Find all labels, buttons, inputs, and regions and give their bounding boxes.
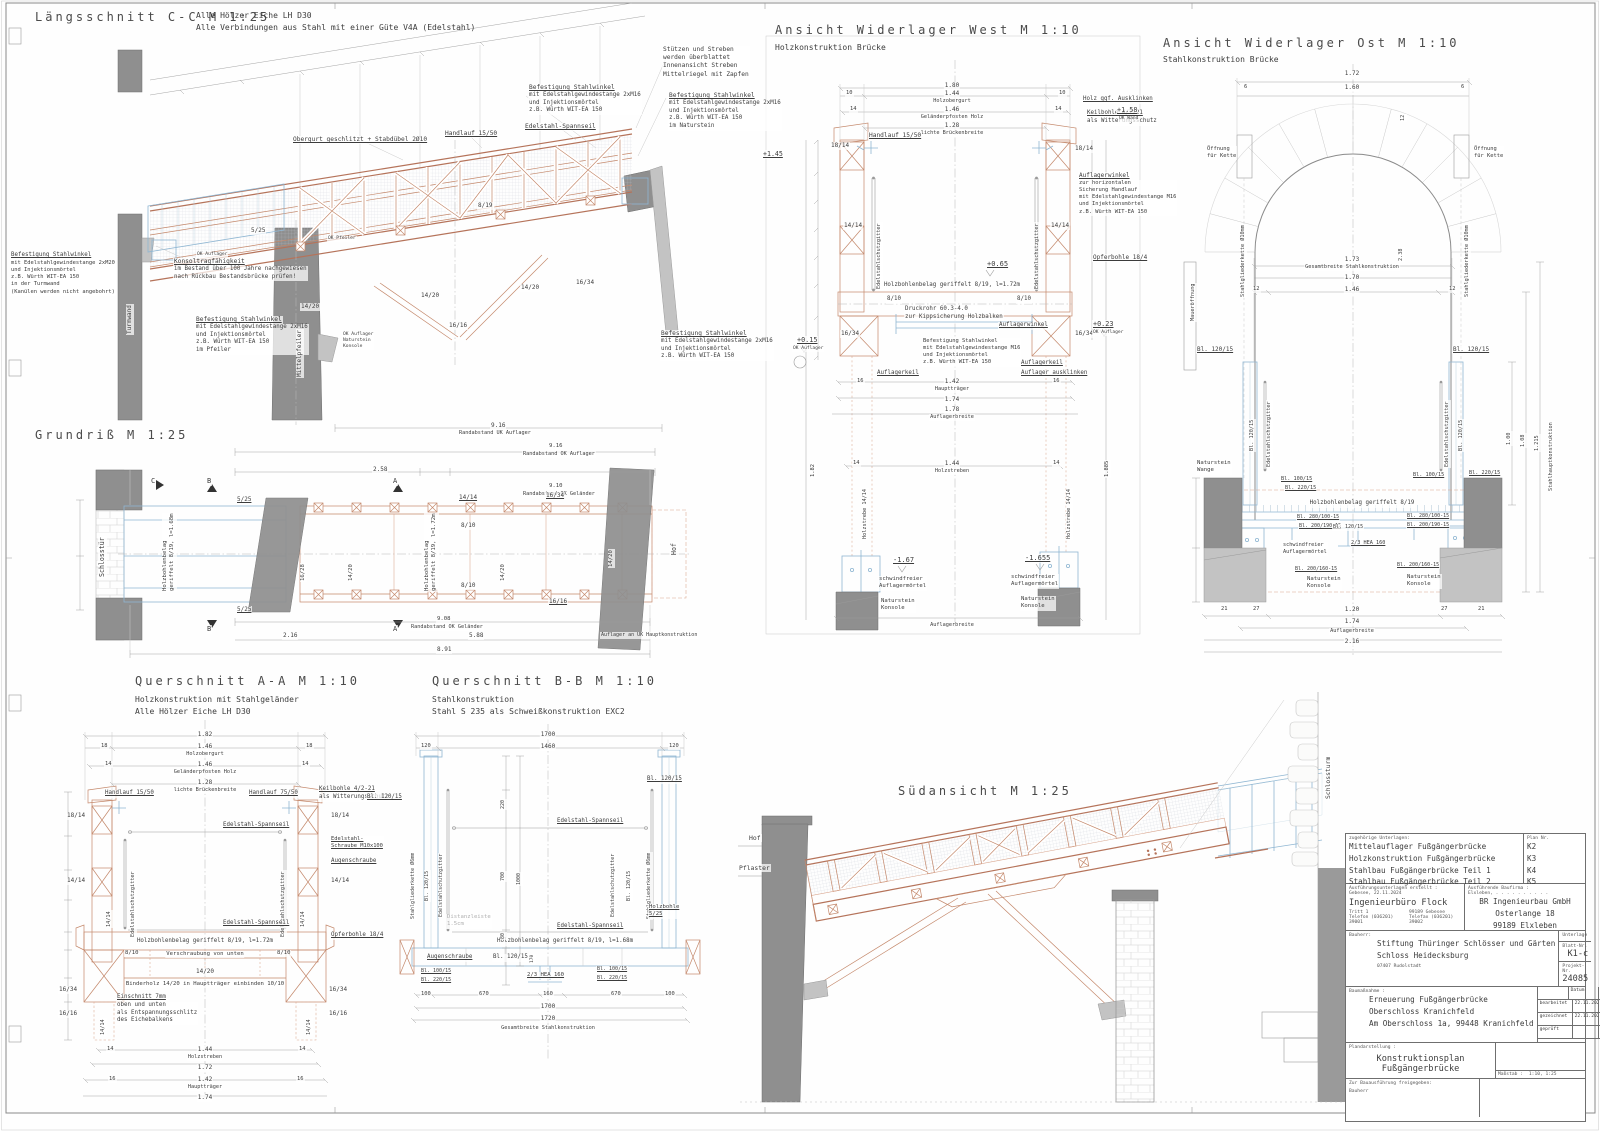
plan-title: Konstruktionsplan Fußgängerbrücke <box>1349 1054 1492 1074</box>
cad-label: Holzbohlenbelag geriffelt 8/19, l=1.68m <box>162 513 177 592</box>
cad-label: 14/14 <box>66 877 86 885</box>
cad-label: Bl. 220/15 <box>1468 470 1501 477</box>
cad-label: 1.885 <box>1104 460 1111 478</box>
cad-label: 1.44 <box>197 1046 213 1054</box>
view-querschnitt-aa <box>64 720 334 1100</box>
cad-label: Holzstreben <box>934 468 970 475</box>
cad-label: 9.08 <box>436 616 451 623</box>
contractor-cell: Ausführende Baufirma : Elxleben, . . . .… <box>1464 884 1585 930</box>
cad-label: 16/34 <box>328 986 348 994</box>
title-grundriss: Grundriß M 1:25 <box>35 428 188 442</box>
cad-label: 1.28 <box>197 779 213 787</box>
cad-label: 14/20 <box>520 284 540 292</box>
cad-label: 14/14 <box>330 877 350 885</box>
cad-label: Bl. 120/15 <box>1332 524 1364 531</box>
cad-label: Naturstein Konsole <box>1020 596 1056 611</box>
cad-label: Maueröffnung <box>1190 283 1197 322</box>
cad-label: 1.08 <box>1520 434 1527 449</box>
cad-label: Stahlhauptkonstruktion <box>1548 421 1555 492</box>
cad-label: 21 <box>1477 606 1486 613</box>
cad-label: Stahlgliederkette Ø10mm <box>1464 224 1471 298</box>
release-empty-cell <box>1479 1079 1585 1117</box>
cad-label: mit Edelstahlgewindestange 2xM16 und Inj… <box>528 92 642 115</box>
cad-label: 2.58 <box>372 466 388 474</box>
attachment-no: K2 <box>1527 841 1582 853</box>
cad-label: 120 <box>420 743 432 750</box>
cad-label: schwindfreier Auflagermörtel <box>1010 574 1059 589</box>
cad-label: Befestigung Stahlwinkel <box>195 316 283 324</box>
cad-label: Auflagerwinkel <box>998 322 1049 330</box>
cad-label: Holzobergurt <box>932 98 971 105</box>
cad-label: 14/20 <box>420 292 440 300</box>
cad-label: 1000 <box>516 872 523 886</box>
cad-label: 10 <box>1058 90 1067 97</box>
cad-label: Bl. 120/15 <box>492 954 529 962</box>
cad-label: Öffnung für Kette <box>1473 146 1504 160</box>
cad-label: Druckrohr 60.3-4.0 zur Kippsicherung Hol… <box>904 306 1004 321</box>
cad-label: Binderholz 14/20 in Hauptträger einbinde… <box>125 981 285 988</box>
cad-label: 14/14 <box>1050 222 1070 230</box>
cad-label: mit Edelstahlgewindestange 2xM16 und Inj… <box>195 324 309 355</box>
cad-label: 100 <box>420 991 432 998</box>
sheet-no: K1-c <box>1562 949 1588 959</box>
cad-label: Edelstahlschutzgitter <box>438 853 445 918</box>
cad-label: 1.60 <box>1344 84 1360 92</box>
cad-label: 14/14 <box>100 1018 107 1036</box>
sig-cell: geprüft <box>1538 1026 1572 1038</box>
measure-line3: Am Oberschloss 1a, 99448 Kranichfeld <box>1369 1018 1534 1030</box>
cad-label: 1.28 <box>944 122 960 130</box>
title-querschnitt-bb: Querschnitt B-B M 1:10 <box>432 674 657 688</box>
cad-label: OK Wand <box>1118 116 1139 122</box>
cad-label: 14/20 <box>195 968 215 976</box>
cad-label: 160 <box>542 991 554 998</box>
cad-label: Holz ggf. Ausklinken <box>1082 96 1154 104</box>
cad-label: +0.65 <box>986 260 1009 269</box>
cad-label: Befestigung Stahlwinkel <box>668 92 756 100</box>
engineer-name: Ingenieurbüro Flock <box>1349 898 1461 908</box>
client-line2: Schloss Heidecksburg <box>1377 950 1555 962</box>
cad-label: 8/19 <box>477 202 493 210</box>
measure-line2: Oberschloss Kranichfeld <box>1369 1006 1534 1018</box>
cad-label: 16/34 <box>58 986 78 994</box>
client-cell: Bauherr: Stiftung Thüringer Schlösser un… <box>1346 931 1558 986</box>
signature-table: Datum Zeichen bearbeitet22.11.2024Flockg… <box>1537 987 1600 1042</box>
cad-label: 670 <box>478 991 490 998</box>
cad-label: 12 <box>1448 286 1457 293</box>
cad-label: Edelstahl-Spannseil <box>556 923 624 931</box>
cad-label: 14/14 <box>458 494 478 502</box>
cad-label: OK Auflager <box>792 346 824 352</box>
cad-label: Hof <box>670 542 679 556</box>
cad-label: 16 <box>296 1076 305 1083</box>
cad-label: Bl. 120/15 <box>1458 419 1465 452</box>
cad-label: 14 <box>852 460 861 467</box>
cad-label: Auflagerkeil <box>876 370 920 378</box>
sig-cell: gezeichnet <box>1538 1013 1572 1025</box>
cad-label: Stahlgliederkette Ø6mm <box>410 852 417 920</box>
cad-label: Holzbohlenbelag geriffelt 8/19, l=1.68m <box>496 938 634 946</box>
cad-label: Holzbohlenbelag geriffelt 8/19, l=1.72m <box>136 938 274 946</box>
cad-label: Edelstahlschutzgitter <box>610 853 617 918</box>
cad-label: 14 <box>1054 106 1063 113</box>
cad-label: schwindfreier Auflagermörtel <box>878 576 927 591</box>
cad-label: B <box>206 477 212 486</box>
attachment-name: Mittelauflager Fußgängerbrücke <box>1349 841 1520 853</box>
cad-label: OK Auflager <box>1092 330 1124 336</box>
cad-label: Auflager ausklinken <box>1020 370 1088 378</box>
project-no: 24085 <box>1562 974 1588 984</box>
cad-label: 14/20 <box>300 303 320 311</box>
cad-label: A <box>392 625 398 634</box>
cad-label: Edelstahlschutzgitter <box>1034 222 1041 290</box>
cad-label: 18/14 <box>330 812 350 820</box>
cad-label: Bl. 280/100-15 <box>1296 514 1340 521</box>
title-querschnitt-aa: Querschnitt A-A M 1:10 <box>135 674 360 688</box>
cad-label: Bl. 220/15 <box>596 975 628 982</box>
cad-label: Edelstahl- Schraube M10x100 <box>330 836 384 850</box>
cad-label: 8/10 <box>1016 296 1032 304</box>
cad-label: im Bestand über 100 Jahre nachgewiesen n… <box>173 266 308 281</box>
cad-label: Bl. 220/15 <box>420 977 452 984</box>
cad-label: 16/34 <box>840 330 860 338</box>
cad-label: 14 <box>301 761 310 768</box>
cad-label: 18/14 <box>1074 145 1094 153</box>
cad-label: Randabstand UK Auflager <box>458 430 532 437</box>
scale-label: Maßstab : <box>1498 1072 1523 1077</box>
cad-label: OK Auflager Naturstein Konsole <box>342 332 374 350</box>
cad-label: Verschraubung von unten <box>165 951 244 958</box>
cad-label: 10 <box>845 90 854 97</box>
cad-label: C <box>150 477 156 486</box>
cad-label: Bl. 120/15 <box>646 776 683 784</box>
cad-label: 1.46 <box>197 743 213 751</box>
cad-label: 14 <box>104 761 113 768</box>
cad-label: 16/16 <box>548 598 568 606</box>
cad-label: 14/20 <box>608 549 615 568</box>
cad-label: 16/28 <box>300 563 307 582</box>
cad-label: 14 <box>1052 460 1061 467</box>
cad-label: Holzobergurt <box>185 751 224 758</box>
cad-label: 18/14 <box>66 812 86 820</box>
cad-label: Mittelpfeiler <box>296 329 304 378</box>
cad-label: 6 <box>1460 84 1465 91</box>
cad-label: Augenschraube <box>330 858 377 866</box>
attachment-no: K4 <box>1527 865 1582 877</box>
scale-cell: Maßstab : 1:10, 1:25 <box>1495 1043 1585 1078</box>
cad-label: 14/14 <box>106 910 113 928</box>
cad-label: Handlauf 15/50 <box>104 790 155 798</box>
cad-label: 12 <box>1400 114 1407 122</box>
cad-label: Bl. 200/160-15 <box>1396 562 1440 569</box>
cad-label: Auflagerwinkel <box>1078 172 1131 180</box>
cad-label: Hauptträger <box>187 1084 223 1091</box>
cad-label: 1.46 <box>197 761 213 769</box>
note-stuetzen: Stützen und Streben werden überblattet I… <box>662 46 750 79</box>
cad-label: 120 <box>668 743 680 750</box>
title-widerlager-west: Ansicht Widerlager West M 1:10 <box>775 23 1082 37</box>
cad-label: Gesamtbreite Stahlkonstruktion <box>500 1025 596 1032</box>
scale-value: 1:10, 1:25 <box>1529 1072 1557 1077</box>
cad-label: 14/20 <box>500 563 507 582</box>
cad-label: 18 <box>305 743 314 750</box>
engineer-fax: Telefax (036201) 39002 <box>1409 915 1461 925</box>
cad-label: 16 <box>1052 378 1061 385</box>
title-widerlager-ost: Ansicht Widerlager Ost M 1:10 <box>1163 36 1460 50</box>
cad-label: Bl. 120/15 <box>1452 346 1490 354</box>
cad-label: 700 <box>500 871 507 882</box>
plan-no-cell: Plan Nr. K2 K3 K4 K5 <box>1523 834 1585 883</box>
cad-label: Naturstein Wange <box>1196 460 1232 475</box>
cad-label: 9.10 <box>548 483 563 490</box>
project-label: Projekt-Nr. <box>1562 964 1588 974</box>
release-label: Zur Bauausführung freigegeben: <box>1349 1081 1476 1086</box>
sig-rows: bearbeitet22.11.2024Flockgezeichnet22.11… <box>1538 1000 1600 1039</box>
cad-label: 670 <box>610 991 622 998</box>
cad-label: Augenschraube <box>426 954 473 962</box>
cad-label: 14/14 <box>306 1018 313 1036</box>
cad-label: Keilbohle 4/2-21 <box>318 786 376 794</box>
cad-label: 1.00 <box>1506 432 1513 447</box>
cad-label: 1.82 <box>197 731 213 739</box>
cad-label: Handlauf 15/50 <box>444 130 498 138</box>
cad-label: Auflagerbreite <box>929 622 975 629</box>
cad-label: 16/16 <box>448 322 468 330</box>
cad-label: 16/16 <box>328 1010 348 1018</box>
cad-label: Edelstahlschutzgitter <box>876 222 883 290</box>
cad-label: A <box>392 477 398 486</box>
cad-label: Bl. 100/15 <box>1412 472 1445 479</box>
sig-cell: bearbeitet <box>1538 1000 1572 1012</box>
cad-label: Geländerpfosten Holz <box>920 114 984 121</box>
cad-label: Auflagerkeil <box>1020 360 1064 368</box>
cad-label: Randabstand OK Geländer <box>410 624 484 631</box>
cad-label: 16 <box>108 1076 117 1083</box>
cad-label: Bl. 120/15 <box>366 794 403 802</box>
cad-label: Holzbohlenbelag geriffelt 8/19 <box>1309 500 1416 508</box>
cad-label: Bl. 120/15 <box>626 870 633 902</box>
cad-label: 14 <box>298 1046 307 1053</box>
cad-label: 2.38 <box>1398 248 1405 263</box>
cad-label: mit Edelstahlgewindestange 2xM16 und Inj… <box>660 338 774 361</box>
plandarstellung-label: Plandarstellung : <box>1349 1045 1492 1050</box>
cad-label: Bl. 100/15 <box>420 968 452 975</box>
cad-label: Bl. 200/190-15 <box>1406 522 1450 529</box>
cad-label: Auflagerbreite <box>929 414 975 421</box>
cad-label: 1.70 <box>1344 274 1360 282</box>
cad-label: 1720 <box>540 1015 556 1023</box>
cad-label: lichte Brückenbreite <box>173 787 237 794</box>
cad-label: Handlauf 15/50 <box>868 132 922 140</box>
cad-label: 2.16 <box>282 632 298 640</box>
attachments-cell: zugehörige Unterlagen: Mittelauflager Fu… <box>1346 834 1523 883</box>
drawing-sheet: Längsschnitt C-C M 1:25 Alle Hölzer Eich… <box>0 0 1600 1131</box>
cad-label: Turmwand <box>126 304 134 335</box>
cad-label: Befestigung Stahlwinkel mit Edelstahlgew… <box>922 338 1021 367</box>
cad-label: 21 <box>1220 606 1229 613</box>
cad-label: Edelstahl-Spannseil <box>556 818 624 826</box>
cad-label: 8.91 <box>436 646 452 654</box>
cad-label: 14/20 <box>348 563 355 582</box>
cad-label: Einschnitt 7mm <box>116 994 167 1002</box>
attachment-no: K3 <box>1527 853 1582 865</box>
cad-label: Randabstand OK Auflager <box>522 451 596 458</box>
cad-label: Bl. 120/15 <box>1196 346 1234 354</box>
cad-label: Stahlgliederkette Ø10mm <box>1240 224 1247 298</box>
cad-label: 14/14 <box>843 222 863 230</box>
cad-label: 1460 <box>540 743 556 751</box>
cad-label: OK Auflager <box>196 252 228 258</box>
cad-label: 1.74 <box>944 396 960 404</box>
cad-label: 1700 <box>540 1003 556 1011</box>
cad-label: 170 <box>530 954 536 964</box>
cad-label: 18/14 <box>830 142 850 150</box>
cad-label: 16 <box>856 378 865 385</box>
cad-label: 2/3 HEA 160 <box>526 972 565 979</box>
prepared-place-date: Gebesee, 22.11.2024 <box>1349 891 1461 896</box>
cad-label: 1.74 <box>1344 618 1360 626</box>
subtitle-querschnitt-bb: Stahlkonstruktion Stahl S 235 als Schwei… <box>432 694 625 718</box>
cad-label: Opferbohle 18/4 <box>1092 254 1148 262</box>
cad-label: 27 <box>1252 606 1261 613</box>
cad-label: schwindfreier Auflagermörtel <box>1282 542 1328 556</box>
cad-label: 8/10 <box>886 296 902 304</box>
cad-label: Distanzleiste 1.5cm <box>446 914 492 929</box>
cad-label: Befestigung Stahlwinkel <box>660 330 748 338</box>
sig-row: geprüft <box>1538 1026 1600 1039</box>
cad-label: 1.20 <box>1344 606 1360 614</box>
cad-label: Holzstrebe 14/14 <box>862 488 869 540</box>
cad-label: 1.72 <box>1344 70 1360 78</box>
subtitle-widerlager-west: Holzkonstruktion Brücke <box>775 42 886 54</box>
cad-label: 16/16 <box>58 1010 78 1018</box>
cad-label: 80 <box>500 932 507 940</box>
cad-label: mit Edelstahlgewindestange 2xM20 und Inj… <box>10 260 116 296</box>
cad-label: 8/10 <box>124 950 139 957</box>
attachment-name: Stahlbau Fußgängerbrücke Teil 1 <box>1349 865 1520 877</box>
cad-label: Hof <box>748 834 762 842</box>
cad-label: 5/25 <box>236 606 252 614</box>
cad-label: -1.655 <box>1024 554 1051 563</box>
cad-label: Auflager an UK Hauptkonstruktion <box>600 632 698 639</box>
cad-label: Befestigung Stahlwinkel <box>528 84 616 92</box>
cad-label: 2.16 <box>1344 638 1360 646</box>
cad-label: 18 <box>100 743 109 750</box>
cad-label: 2/3 HEA 160 <box>1350 540 1386 547</box>
cad-label: 1.82 <box>810 463 817 478</box>
cad-label: Naturstein Konsole <box>1306 576 1342 591</box>
cad-label: 1.73 <box>1344 256 1360 264</box>
cad-label: 8/10 <box>460 582 476 590</box>
cad-label: Handlauf 75/50 <box>248 790 299 798</box>
cad-label: zur horizontalen Sicherung Handlauf mit … <box>1078 180 1177 216</box>
contractor-addr1: Osterlange 18 <box>1468 908 1582 920</box>
cad-label: 1.215 <box>1534 434 1541 452</box>
subtitle-widerlager-ost: Stahlkonstruktion Brücke <box>1163 54 1279 66</box>
sig-cell <box>1572 1026 1598 1038</box>
cad-label: Bl. 100/15 <box>1280 476 1313 483</box>
cad-label: Edelstahlschutzgitter <box>280 870 287 938</box>
cad-label: Edelstahlschutzgitter <box>1444 400 1451 468</box>
cad-label: Auflagerbreite <box>1329 628 1375 635</box>
cad-label: oben und unten als Entspannungsschlitz d… <box>116 1002 198 1025</box>
subtitle-querschnitt-aa: Holzkonstruktion mit Stahlgeländer Alle … <box>135 694 299 718</box>
cad-label: 16/34 <box>545 492 565 500</box>
measure-line1: Erneuerung Fußgängerbrücke <box>1369 994 1534 1006</box>
cad-label: 8/10 <box>276 950 291 957</box>
cad-label: 14/14 <box>300 910 307 928</box>
cad-label: 1.74 <box>197 1094 213 1102</box>
cad-label: Holzstrebe 14/14 <box>1066 488 1073 540</box>
cad-label: Edelstahl-Spannseil <box>222 822 290 830</box>
cad-label: Konsoltragfähigkeit <box>173 258 246 266</box>
cad-label: Bl. 120/15 <box>424 870 431 902</box>
cad-label: Schlosstür <box>98 536 107 578</box>
cad-label: Naturstein Konsole <box>880 598 916 613</box>
view-laengsschnitt <box>118 3 678 432</box>
cad-label: Holzstreben <box>187 1054 223 1061</box>
sheet-project-cell: Unterlage Blatt-Nr. K1-c Projekt-Nr. 240… <box>1558 931 1591 986</box>
cad-label: Gesamtbreite Stahlkonstruktion <box>1304 264 1400 271</box>
cad-label: +1.58 <box>1116 106 1138 115</box>
cad-label: Befestigung Stahlwinkel <box>10 252 92 260</box>
cad-label: 1.78 <box>944 406 960 414</box>
cad-label: +0.23 <box>1092 320 1114 329</box>
cad-label: 16/34 <box>575 279 595 287</box>
cad-label: +1.45 <box>762 150 784 159</box>
date-label: Datum <box>1568 987 1598 999</box>
cad-label: Opferbohle 18/4 <box>330 932 384 940</box>
cad-label: 100 <box>664 991 676 998</box>
cad-label: Naturstein Konsole <box>1406 574 1442 589</box>
cad-label: mit Edelstahlgewindestange 2xM16 und Inj… <box>668 100 782 131</box>
cad-label: Bl. 200/160-15 <box>1294 566 1338 573</box>
cad-label: Holzbohlenbelag geriffelt 8/19, l=1.72m <box>883 282 1021 290</box>
cad-label: 1.42 <box>197 1076 213 1084</box>
title-suedansicht: Südansicht M 1:25 <box>898 784 1072 798</box>
cad-label: Geländerpfosten Holz <box>173 769 237 776</box>
cad-label: 1.44 <box>944 460 960 468</box>
view-suedansicht <box>738 692 1352 1102</box>
cad-label: -1.67 <box>892 556 915 565</box>
cad-label: 1.46 <box>1344 286 1360 294</box>
cad-label: +0.15 <box>796 336 818 345</box>
client-line3: 07407 Rudolstadt <box>1377 964 1555 969</box>
cad-label: Bl. 280/100-15 <box>1406 513 1450 520</box>
release-cell: Zur Bauausführung freigegeben: Bauherr <box>1346 1079 1479 1117</box>
cad-label: Edelstahlschutzgitter <box>1266 400 1273 468</box>
unterlage-label: Unterlage <box>1562 933 1588 938</box>
note-material-2: Alle Verbindungen aus Stahl mit einer Gü… <box>196 22 475 34</box>
cad-label: Bl. 120/15 <box>1249 419 1256 452</box>
cad-label: 9.16 <box>490 422 506 430</box>
cad-label: Pflaster <box>738 864 771 872</box>
cad-label: Edelstahlschutzgitter <box>130 870 137 938</box>
sig-row: gezeichnet22.11.2024Flock <box>1538 1013 1600 1026</box>
cad-label: 9.16 <box>548 443 563 450</box>
cad-label: B <box>206 625 212 634</box>
cad-label: Öffnung für Kette <box>1206 146 1237 160</box>
cad-label: Schlossturm <box>1324 756 1332 800</box>
cad-label: Edelstahl-Spannseil <box>222 920 290 928</box>
cad-label: lichte Brückenbreite <box>920 130 984 137</box>
cad-label: 1.80 <box>944 82 960 90</box>
engineer-cell: Ausführungsunterlagen erstellt : Gebesee… <box>1346 884 1464 930</box>
cad-label: Holzbohlenbelag geriffelt 8/19, l=1.72m <box>424 513 439 592</box>
sig-row: bearbeitet22.11.2024Flock <box>1538 1000 1600 1013</box>
cad-label: 14 <box>849 106 858 113</box>
cad-label: OK Pfeiler <box>327 236 357 242</box>
